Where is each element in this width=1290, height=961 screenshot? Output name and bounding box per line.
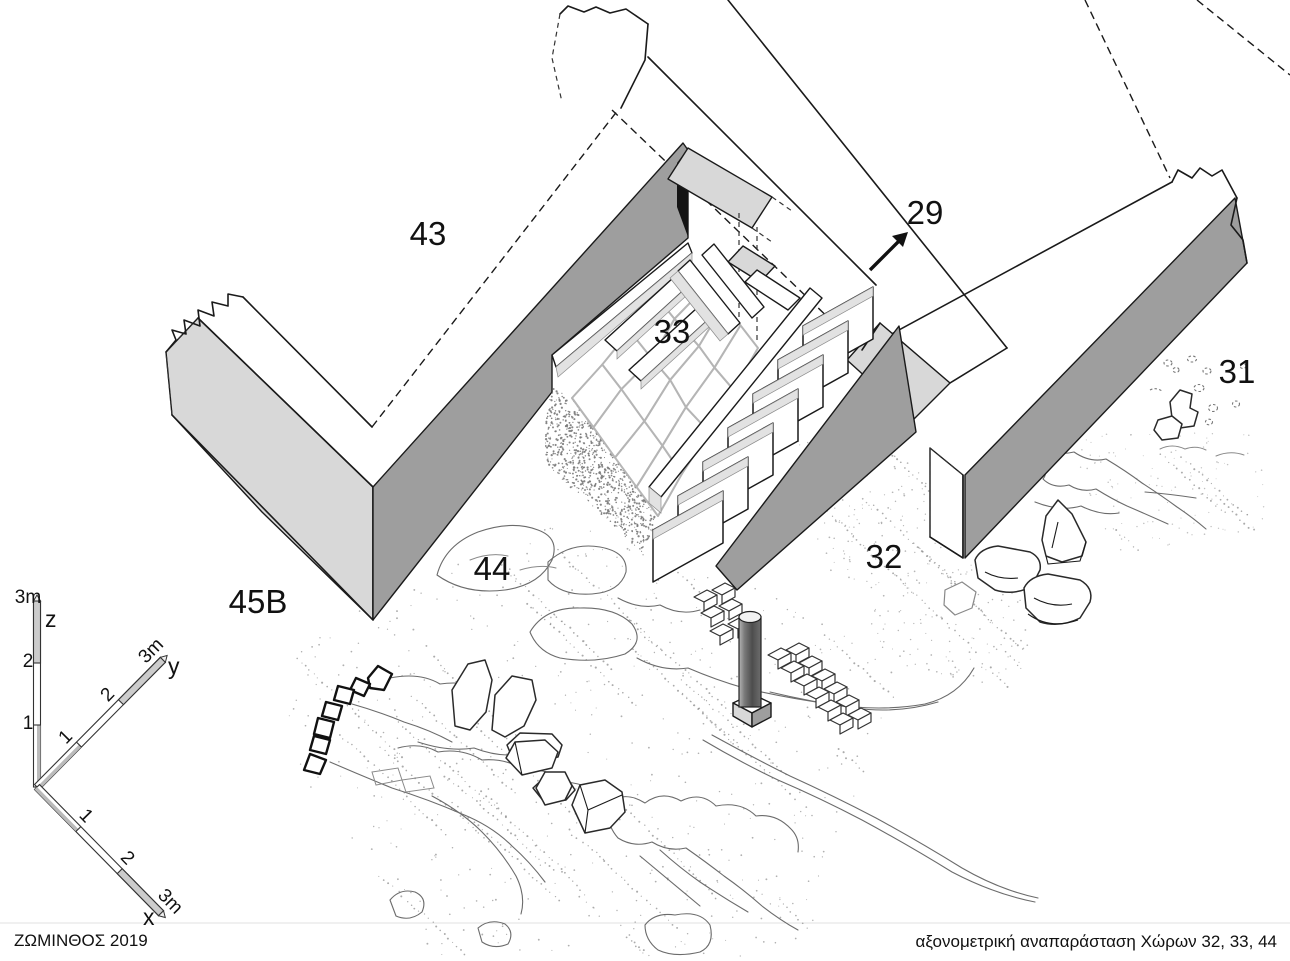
drawing-canvas: 123mz123my123mx 43293331324445B ΖΩΜΙΝΘΟΣ… xyxy=(0,0,1290,961)
room-label-45B: 45B xyxy=(229,583,288,620)
room-label-43: 43 xyxy=(410,215,447,252)
axonometric-drawing: 123mz123my123mx 43293331324445B ΖΩΜΙΝΘΟΣ… xyxy=(0,0,1290,961)
rubble-block-rows xyxy=(694,583,871,734)
footer-caption: αξονομετρική αναπαράσταση Χώρων 32, 33, … xyxy=(916,932,1277,951)
scale-axes-indicator: 123mz123my123mx xyxy=(15,587,187,930)
axis-letter: y xyxy=(168,653,180,679)
axis-letter: z xyxy=(45,606,57,632)
axis-tick-label: 1 xyxy=(23,713,34,734)
room-label-44: 44 xyxy=(474,550,511,587)
axis-tick-label: 2 xyxy=(23,651,34,672)
wall-45B xyxy=(166,294,373,620)
room-label-29: 29 xyxy=(907,194,944,231)
footer-site-year: ΖΩΜΙΝΘΟΣ 2019 xyxy=(14,931,148,950)
axis-bar: 123m xyxy=(19,634,173,789)
column xyxy=(733,612,771,728)
room-label-32: 32 xyxy=(866,538,903,575)
axis-letter: x xyxy=(143,904,155,930)
axis-bar: 123m xyxy=(15,587,41,787)
direction-arrow-29 xyxy=(870,232,908,270)
room-label-33: 33 xyxy=(654,313,691,350)
axis-tick-label: 3m xyxy=(15,587,41,608)
axis-bar: 123m xyxy=(35,769,187,923)
room-label-31: 31 xyxy=(1219,353,1256,390)
